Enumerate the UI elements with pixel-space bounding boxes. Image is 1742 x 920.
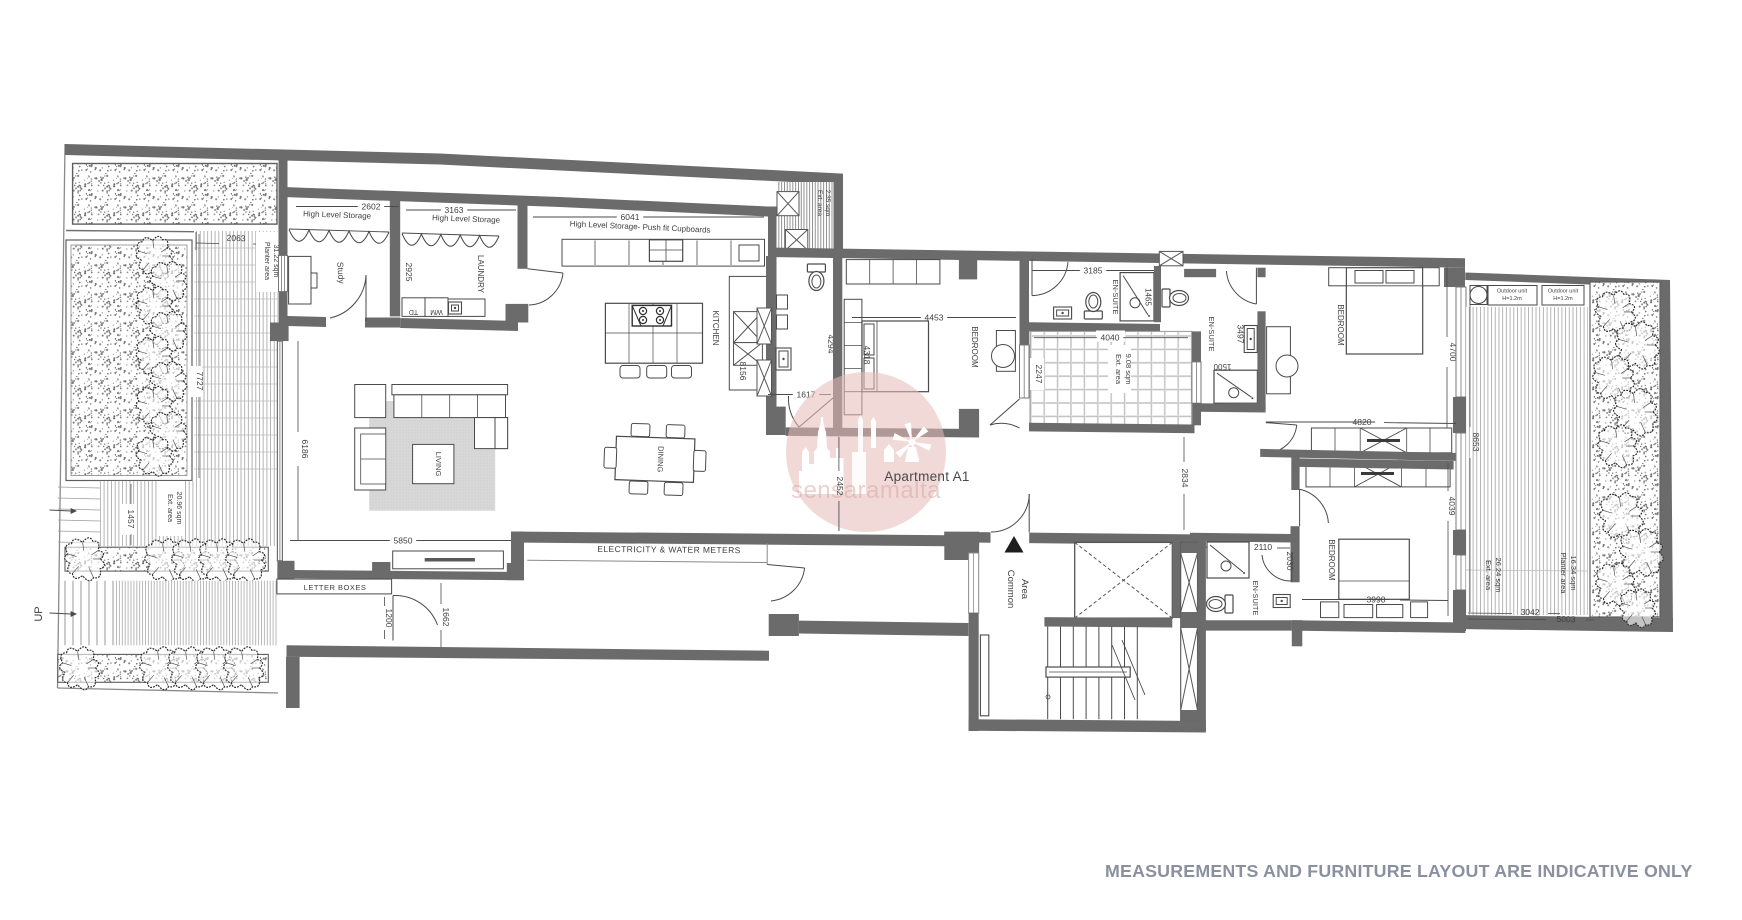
svg-text:BEDROOM: BEDROOM (1327, 539, 1336, 581)
svg-text:Apartment A1: Apartment A1 (884, 469, 969, 484)
svg-text:H=1.2m: H=1.2m (1502, 296, 1522, 302)
svg-text:Study: Study (335, 262, 347, 285)
svg-text:LIVING: LIVING (434, 452, 443, 477)
svg-text:Outdoor unit: Outdoor unit (1497, 289, 1528, 295)
svg-text:5003: 5003 (1557, 614, 1576, 624)
svg-text:LETTER BOXES: LETTER BOXES (304, 583, 367, 592)
svg-text:1465: 1465 (1144, 288, 1153, 306)
svg-text:6186: 6186 (300, 440, 310, 459)
svg-text:4453: 4453 (925, 313, 944, 323)
svg-text:2602: 2602 (362, 202, 381, 212)
svg-text:2834: 2834 (1180, 469, 1190, 488)
svg-text:ELECTRICITY & WATER METERS: ELECTRICITY & WATER METERS (597, 544, 741, 555)
svg-text:4318: 4318 (862, 346, 872, 365)
svg-text:Ext. area: Ext. area (166, 494, 173, 522)
svg-text:1200: 1200 (384, 609, 394, 628)
svg-text:EN-SUITE: EN-SUITE (1111, 279, 1120, 314)
svg-text:H=1.2m: H=1.2m (1553, 296, 1573, 302)
svg-text:2452: 2452 (835, 477, 845, 496)
svg-text:2110: 2110 (1254, 542, 1273, 552)
svg-text:8156: 8156 (738, 362, 748, 381)
svg-text:Ext. area: Ext. area (1114, 354, 1123, 385)
svg-text:Area: Area (1019, 579, 1030, 600)
svg-text:Common: Common (1005, 570, 1016, 609)
svg-text:26.24 sqm: 26.24 sqm (1494, 557, 1503, 592)
svg-text:9.08 sqm: 9.08 sqm (1124, 354, 1133, 385)
svg-text:Ext. area: Ext. area (816, 190, 823, 216)
svg-text:3185: 3185 (1084, 266, 1103, 276)
svg-text:Outdoor unit: Outdoor unit (1548, 289, 1579, 295)
svg-text:2925: 2925 (404, 263, 414, 282)
svg-text:8653: 8653 (1471, 433, 1481, 452)
svg-text:16.34 sqm: 16.34 sqm (1569, 555, 1578, 590)
svg-text:MEASUREMENTS AND FURNITURE LAY: MEASUREMENTS AND FURNITURE LAYOUT ARE IN… (1105, 861, 1693, 881)
svg-text:7727: 7727 (195, 372, 205, 391)
svg-text:1662: 1662 (441, 608, 451, 627)
svg-text:2.35 sqm: 2.35 sqm (824, 190, 831, 217)
svg-text:2030: 2030 (1285, 552, 1295, 571)
svg-text:WM: WM (430, 308, 443, 315)
svg-text:31.22 sqm: 31.22 sqm (272, 245, 279, 278)
svg-text:4040: 4040 (1101, 333, 1120, 343)
svg-text:20.96 sqm: 20.96 sqm (175, 492, 182, 525)
svg-text:BEDROOM: BEDROOM (1336, 304, 1345, 346)
svg-text:2063: 2063 (226, 233, 246, 244)
svg-text:EN-SUITE: EN-SUITE (1207, 316, 1216, 351)
svg-text:EN-SUITE: EN-SUITE (1251, 580, 1260, 615)
svg-text:Planter area: Planter area (1559, 553, 1568, 595)
svg-text:KITCHEN: KITCHEN (711, 310, 720, 345)
svg-text:3990: 3990 (1367, 595, 1386, 605)
svg-text:3042: 3042 (1521, 607, 1540, 617)
svg-text:BEDROOM: BEDROOM (970, 326, 979, 368)
svg-text:DINING: DINING (656, 446, 666, 473)
svg-text:UP: UP (33, 606, 45, 621)
svg-text:4820: 4820 (1353, 417, 1372, 427)
svg-text:Planter area: Planter area (263, 242, 270, 280)
svg-text:LAUNDRY: LAUNDRY (476, 255, 485, 294)
svg-text:6041: 6041 (621, 212, 640, 222)
svg-text:Ext. area: Ext. area (1484, 560, 1493, 591)
svg-text:5850: 5850 (394, 536, 413, 546)
svg-text:1457: 1457 (126, 510, 136, 529)
svg-text:TD: TD (409, 308, 418, 315)
svg-text:2247: 2247 (1034, 365, 1044, 384)
